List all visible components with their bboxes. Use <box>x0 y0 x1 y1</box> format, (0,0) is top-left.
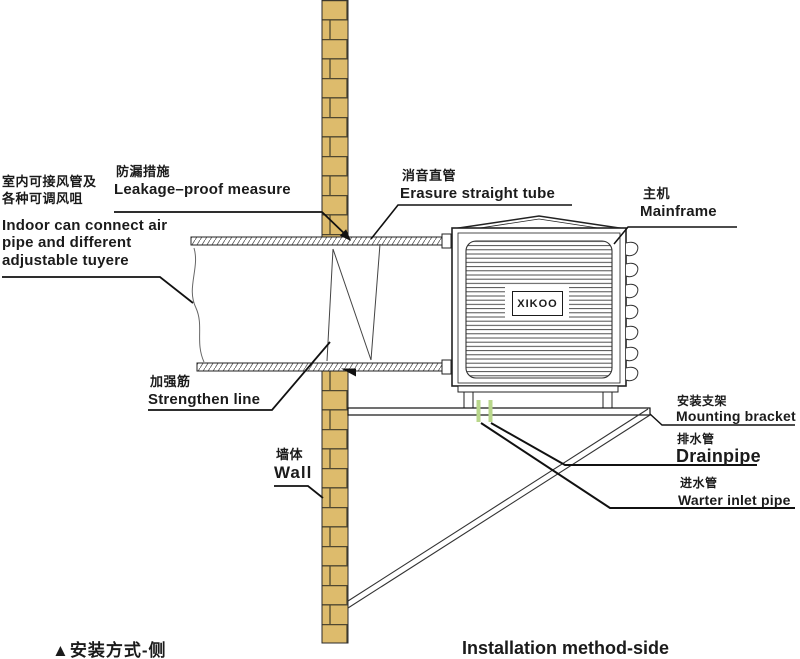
bracket-shelf <box>348 408 650 415</box>
mounting-label-en: Mounting bracket <box>676 408 796 425</box>
duct-end-flange-top <box>442 234 451 248</box>
unit-outlet-tabs <box>626 242 638 380</box>
leader-wall <box>274 486 323 498</box>
unit-base-rail <box>458 386 618 392</box>
wall-label-zh: 墙体 <box>276 447 303 462</box>
unit-leg-left <box>464 392 473 408</box>
indoor-label-en: Indoor can connect air pipe and differen… <box>2 217 167 269</box>
bracket-brace <box>348 409 650 608</box>
leakage-label-en: Leakage–proof measure <box>114 181 291 199</box>
diagram-drawing <box>0 0 800 659</box>
caption-left: ▲安装方式-侧 <box>52 636 167 659</box>
erasure-label-zh: 消音直管 <box>402 168 456 183</box>
unit-leg-right <box>603 392 612 408</box>
leader-indoor <box>2 277 193 303</box>
duct-bottom-band <box>197 363 443 371</box>
wall-label-en: Wall <box>274 463 312 483</box>
caption-right: Installation method-side <box>462 638 669 659</box>
wall-brick-column <box>322 0 348 643</box>
strengthen-label-en: Strengthen line <box>148 391 260 409</box>
strengthen-lines <box>327 244 380 361</box>
mainframe-label-zh: 主机 <box>643 186 670 201</box>
erasure-label-en: Erasure straight tube <box>400 185 555 203</box>
xikoo-logo: XIKOO <box>512 291 563 316</box>
leakage-label-zh: 防漏措施 <box>116 164 170 179</box>
duct-broken-edge <box>192 248 204 362</box>
installation-diagram: 室内可接风管及 各种可调风咀 Indoor can connect air pi… <box>0 0 800 659</box>
mainframe-label-en: Mainframe <box>640 203 717 221</box>
mounting-label-zh: 安装支架 <box>677 394 727 408</box>
water-inlet-label-en: Warter inlet pipe <box>678 492 791 509</box>
indoor-label-zh: 室内可接风管及 各种可调风咀 <box>2 174 97 207</box>
water-pipe-mark-right <box>489 400 493 422</box>
leader-mainframe <box>614 227 737 244</box>
drainpipe-label-en: Drainpipe <box>676 446 761 467</box>
strengthen-label-zh: 加强筋 <box>150 374 191 389</box>
duct-end-flange-bottom <box>442 360 451 374</box>
drainpipe-label-zh: 排水管 <box>677 432 715 446</box>
duct-top-band <box>191 237 443 245</box>
water-pipe-mark-left <box>477 400 481 422</box>
water-inlet-label-zh: 进水管 <box>680 476 718 490</box>
